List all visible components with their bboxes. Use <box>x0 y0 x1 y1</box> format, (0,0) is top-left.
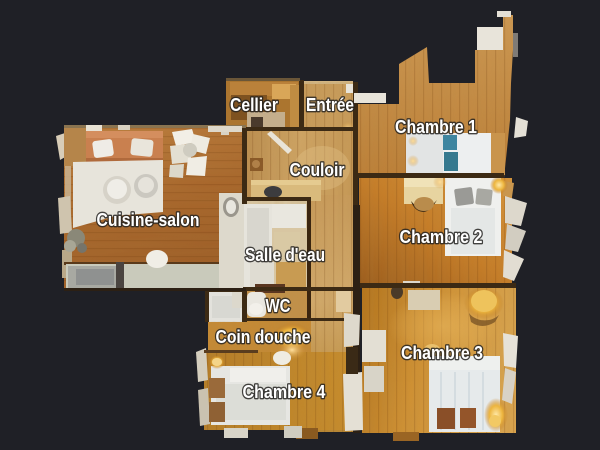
svg-text:Chambre 4: Chambre 4 <box>243 382 326 402</box>
svg-text:Chambre 3: Chambre 3 <box>401 343 483 363</box>
svg-text:WC: WC <box>266 296 291 316</box>
svg-text:Chambre 1: Chambre 1 <box>395 117 477 137</box>
svg-text:Entrée: Entrée <box>306 95 354 115</box>
svg-text:Salle d'eau: Salle d'eau <box>245 245 325 265</box>
svg-text:Couloir: Couloir <box>290 160 345 180</box>
svg-text:Chambre 2: Chambre 2 <box>400 227 483 247</box>
svg-text:Cellier: Cellier <box>230 95 278 115</box>
svg-text:Coin douche: Coin douche <box>216 327 311 347</box>
svg-text:Cuisine-salon: Cuisine-salon <box>97 210 200 230</box>
